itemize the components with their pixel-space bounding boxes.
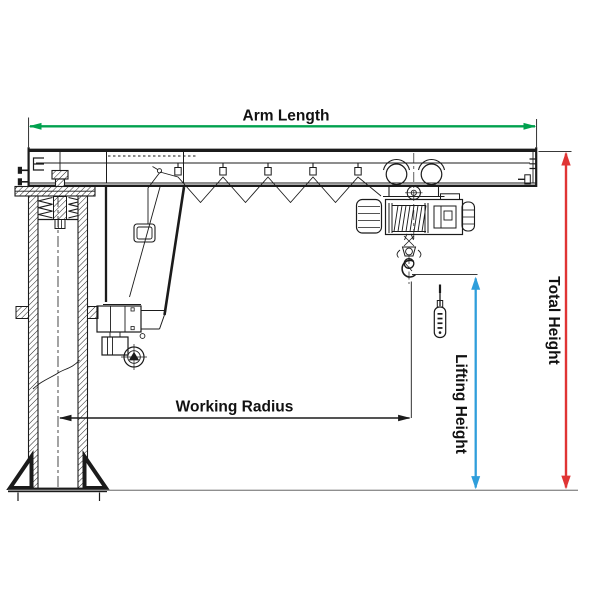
gusset-left [10, 457, 32, 489]
festoon-cable [134, 164, 381, 243]
slew-motor [102, 337, 128, 355]
festoon-hangers [175, 164, 361, 176]
working-radius-label: Working Radius [176, 399, 294, 416]
control-box [134, 224, 155, 242]
arrowhead-left [29, 123, 42, 130]
beam-left-pins [18, 167, 28, 186]
lifting-height-dimension: Lifting Height [452, 277, 480, 490]
arm-length-dimension: Arm Length [29, 108, 537, 130]
power-cable [33, 360, 80, 389]
gusset-right [85, 457, 107, 489]
support-bracket [103, 187, 184, 315]
rope-drum [394, 206, 426, 232]
feed-wire [148, 173, 160, 224]
mast-column [16, 196, 98, 489]
hook-block [397, 234, 421, 284]
beam-end-stop-left [34, 158, 45, 170]
total-height-dimension: Total Height [545, 152, 571, 490]
diagram-canvas: Arm Length Total Height Lifting Height W… [0, 0, 600, 600]
jib-beam [18, 147, 537, 187]
crane-drawing [8, 118, 572, 502]
arrowhead-up [561, 152, 570, 166]
working-radius-dimension: Working Radius [59, 399, 411, 422]
arrowhead-up [471, 277, 480, 290]
base [8, 457, 107, 502]
electric-hoist [357, 194, 475, 235]
arrowhead-down [471, 476, 480, 489]
beam-right-pin [518, 175, 530, 184]
lifting-height-label: Lifting Height [452, 354, 469, 454]
arm-length-label: Arm Length [243, 108, 330, 125]
jib-crane-diagram: Arm Length Total Height Lifting Height W… [0, 0, 600, 600]
spring-left [39, 198, 53, 218]
total-height-label: Total Height [545, 276, 562, 364]
arrowhead-right [398, 415, 411, 422]
arrowhead-right [524, 123, 537, 130]
hoist-motor-cap [462, 202, 475, 231]
arrowhead-down [561, 476, 570, 490]
pendant-buttons [438, 313, 443, 334]
pendant-control [434, 285, 445, 338]
slew-drive [97, 306, 166, 370]
arrowhead-left [59, 415, 72, 422]
